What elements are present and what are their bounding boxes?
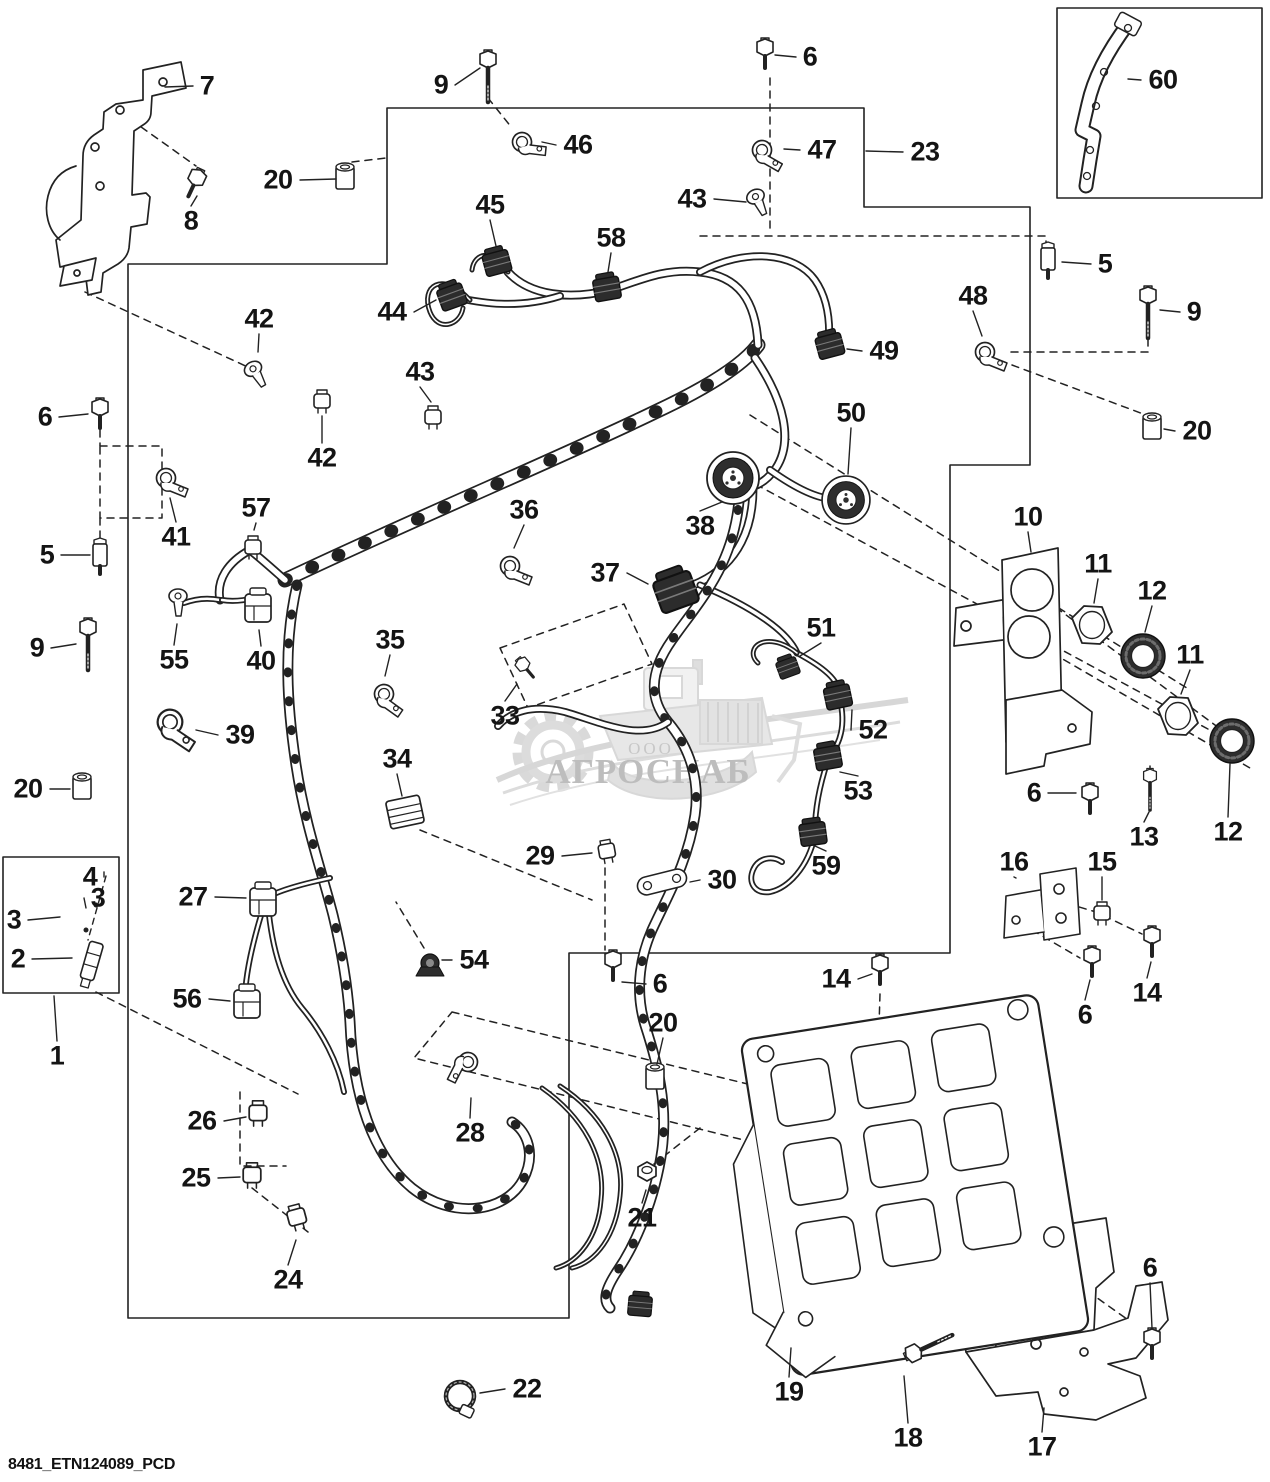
callout-20: 20 — [13, 776, 42, 803]
callout-41: 41 — [161, 524, 190, 551]
callout-9: 9 — [434, 72, 449, 99]
callout-50: 50 — [836, 400, 865, 427]
callout-6: 6 — [803, 44, 818, 71]
callout-5: 5 — [1098, 251, 1113, 278]
callout-15: 15 — [1087, 849, 1116, 876]
callout-30: 30 — [707, 867, 736, 894]
callout-28: 28 — [455, 1120, 484, 1147]
callout-6: 6 — [38, 404, 53, 431]
callout-14: 14 — [1132, 980, 1161, 1007]
callout-12: 12 — [1213, 819, 1242, 846]
callout-23: 23 — [910, 139, 939, 166]
callout-54: 54 — [459, 947, 488, 974]
callout-48: 48 — [958, 283, 987, 310]
callout-3: 3 — [7, 907, 22, 934]
callout-43: 43 — [405, 359, 434, 386]
callout-42: 42 — [244, 306, 273, 333]
callout-57: 57 — [241, 495, 270, 522]
callout-40: 40 — [246, 648, 275, 675]
callout-6: 6 — [1078, 1002, 1093, 1029]
callout-16: 16 — [999, 849, 1028, 876]
callout-1: 1 — [50, 1043, 65, 1070]
callout-39: 39 — [225, 722, 254, 749]
callout-55: 55 — [159, 647, 188, 674]
callout-35: 35 — [375, 627, 404, 654]
callout-25: 25 — [181, 1165, 210, 1192]
callout-7: 7 — [200, 73, 215, 100]
callout-24: 24 — [273, 1267, 302, 1294]
callout-59: 59 — [811, 853, 840, 880]
callout-5: 5 — [40, 542, 55, 569]
callout-11: 11 — [1176, 642, 1204, 669]
callout-21: 21 — [627, 1205, 656, 1232]
callout-6: 6 — [1027, 780, 1042, 807]
callout-layer: 7966046472320843455854894244434950426205… — [0, 0, 1270, 1482]
callout-44: 44 — [377, 299, 406, 326]
callout-18: 18 — [893, 1425, 922, 1452]
callout-37: 37 — [590, 560, 619, 587]
callout-53: 53 — [843, 778, 872, 805]
callout-17: 17 — [1027, 1434, 1056, 1461]
callout-51: 51 — [806, 615, 835, 642]
drawing-code: 8481_ETN124089_PCD — [8, 1456, 175, 1474]
callout-19: 19 — [774, 1379, 803, 1406]
callout-26: 26 — [187, 1108, 216, 1135]
callout-42: 42 — [307, 445, 336, 472]
callout-52: 52 — [858, 717, 887, 744]
callout-20: 20 — [1182, 418, 1211, 445]
callout-12: 12 — [1137, 578, 1166, 605]
callout-10: 10 — [1013, 504, 1042, 531]
callout-60: 60 — [1148, 67, 1177, 94]
callout-6: 6 — [1143, 1255, 1158, 1282]
callout-47: 47 — [807, 137, 836, 164]
callout-34: 34 — [382, 746, 411, 773]
callout-49: 49 — [869, 338, 898, 365]
callout-20: 20 — [263, 167, 292, 194]
callout-2: 2 — [11, 946, 26, 973]
callout-45: 45 — [475, 192, 504, 219]
callout-56: 56 — [172, 986, 201, 1013]
callout-43: 43 — [677, 186, 706, 213]
callout-27: 27 — [178, 884, 207, 911]
callout-14: 14 — [821, 966, 850, 993]
callout-22: 22 — [512, 1376, 541, 1403]
callout-8: 8 — [184, 208, 199, 235]
callout-46: 46 — [563, 132, 592, 159]
callout-9: 9 — [30, 635, 45, 662]
callout-36: 36 — [509, 497, 538, 524]
callout-20: 20 — [648, 1010, 677, 1037]
callout-9: 9 — [1187, 299, 1202, 326]
callout-33: 33 — [490, 703, 519, 730]
callout-11: 11 — [1084, 551, 1112, 578]
callout-29: 29 — [525, 843, 554, 870]
callout-58: 58 — [596, 225, 625, 252]
callout-6: 6 — [653, 971, 668, 998]
parts-diagram-page: ООО АГРОСНАБ — [0, 0, 1270, 1482]
callout-13: 13 — [1129, 824, 1158, 851]
callout-38: 38 — [685, 513, 714, 540]
callout-3: 3 — [91, 885, 106, 912]
